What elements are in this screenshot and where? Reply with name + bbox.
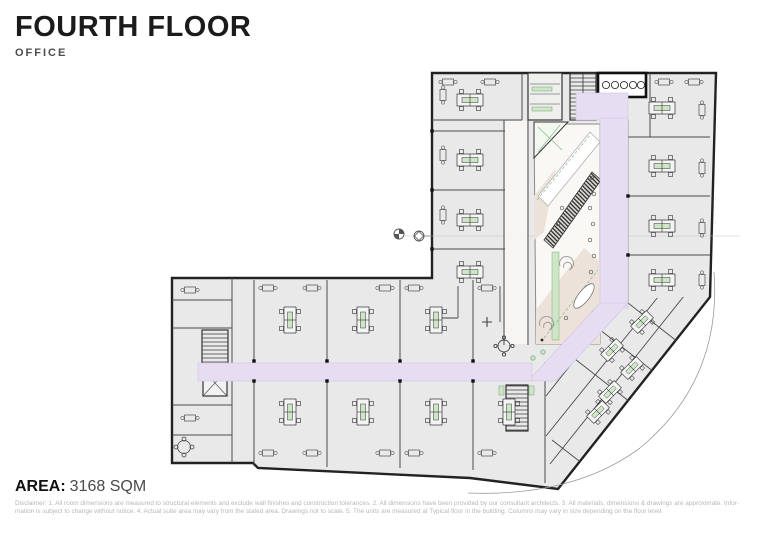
- area-line: AREA:3168 SQM: [15, 478, 760, 496]
- atrium: [534, 124, 601, 344]
- grid-marker-diamond-icon: [414, 231, 432, 241]
- upper-corridor: [505, 121, 527, 344]
- floor-plan: [0, 0, 768, 541]
- area-value: 3168 SQM: [70, 478, 146, 495]
- area-label: AREA:: [15, 478, 66, 495]
- restrooms: [528, 73, 562, 120]
- page-footer: AREA:3168 SQM Disclaimer: 1. All room di…: [15, 478, 760, 516]
- disclaimer-line-1: Disclaimer: 1. All room dimensions are m…: [15, 500, 760, 508]
- disclaimer-line-2: mation is subject to change without noti…: [15, 508, 760, 516]
- grid-marker-hatched-icon: [394, 229, 404, 239]
- floor-plan-drawing: [0, 0, 768, 541]
- stairs-lower-left: [202, 330, 228, 364]
- disclaimer: Disclaimer: 1. All room dimensions are m…: [15, 500, 760, 516]
